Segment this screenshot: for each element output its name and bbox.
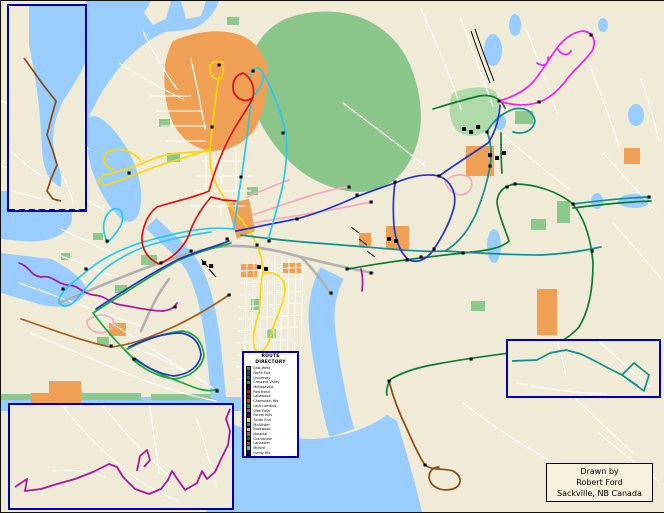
legend-entry-label: South End xyxy=(253,418,270,422)
legend-entry-label: East-West xyxy=(253,366,270,370)
route-directory-legend: ROUTE DIRECTORY East-WestNorth EndUniver… xyxy=(242,351,299,458)
legend-entry-label: University xyxy=(253,376,270,380)
legend-entry-label: Crescent Valley xyxy=(253,380,279,384)
legend-entry-label: Spruce Lake xyxy=(253,455,274,458)
legend-entry-label: Millidgeville xyxy=(253,385,273,389)
legend-entry: Spruce Lake xyxy=(246,455,295,458)
legend-entry-label: Loch Lomond xyxy=(253,404,276,408)
legend-entry-label: Champlain Hts xyxy=(253,399,278,403)
attribution-line-3: Sackville, NB Canada xyxy=(557,488,642,499)
legend-entry-label: McAllister xyxy=(253,423,270,427)
attribution-line-1: Drawn by xyxy=(580,466,618,477)
legend-title: ROUTE DIRECTORY xyxy=(246,354,295,366)
legend-entry-label: Red Head xyxy=(253,390,269,394)
inset-topleft xyxy=(8,5,86,211)
legend-entry-label: Grandview xyxy=(253,437,271,441)
legend-entry-label: Milford xyxy=(253,446,265,450)
attribution-line-2: Robert Ford xyxy=(576,477,623,488)
legend-entry-label: Hospital xyxy=(253,432,267,436)
legend-entry-label: Lakewood xyxy=(253,394,270,398)
legend-entry-label: Fundy Hts xyxy=(253,451,270,455)
attribution-box: Drawn by Robert Ford Sackville, NB Canad… xyxy=(546,463,653,502)
legend-entry-label: Lancaster xyxy=(253,441,270,445)
map-canvas xyxy=(1,1,664,512)
legend-entries: East-WestNorth EndUniversityCrescent Val… xyxy=(246,366,295,458)
legend-entry-label: North End xyxy=(253,371,270,375)
legend-entry-label: Glen Falls xyxy=(253,409,269,413)
legend-entry-label: Forest Hills xyxy=(253,413,272,417)
legend-color-swatch xyxy=(246,455,251,458)
transit-map: ROUTE DIRECTORY East-WestNorth EndUniver… xyxy=(0,0,664,513)
legend-entry-label: Rockwood xyxy=(253,427,270,431)
inset-bottomleft xyxy=(9,404,233,509)
inset-right xyxy=(507,340,660,397)
